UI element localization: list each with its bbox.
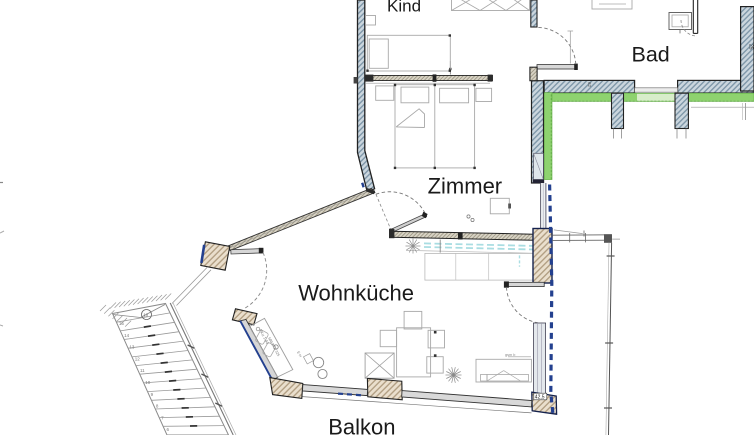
svg-text:Bad: Bad [632, 43, 670, 67]
svg-text:Zimmer: Zimmer [428, 174, 503, 199]
svg-text:Kind: Kind [387, 0, 421, 16]
svg-text:12: 12 [135, 356, 141, 361]
svg-text:11: 11 [140, 368, 145, 373]
svg-text:25: 25 [748, 44, 754, 50]
svg-text:42,5: 42,5 [535, 395, 545, 401]
svg-text:Balkon: Balkon [328, 414, 395, 435]
svg-text:13: 13 [129, 345, 135, 350]
svg-text:62: 62 [587, 82, 592, 88]
svg-text:14: 14 [124, 333, 130, 338]
svg-text:10: 10 [143, 313, 148, 318]
svg-text:Wohnküche: Wohnküche [298, 281, 414, 306]
svg-text:gsm b: gsm b [505, 353, 515, 357]
svg-text:10: 10 [145, 380, 151, 385]
